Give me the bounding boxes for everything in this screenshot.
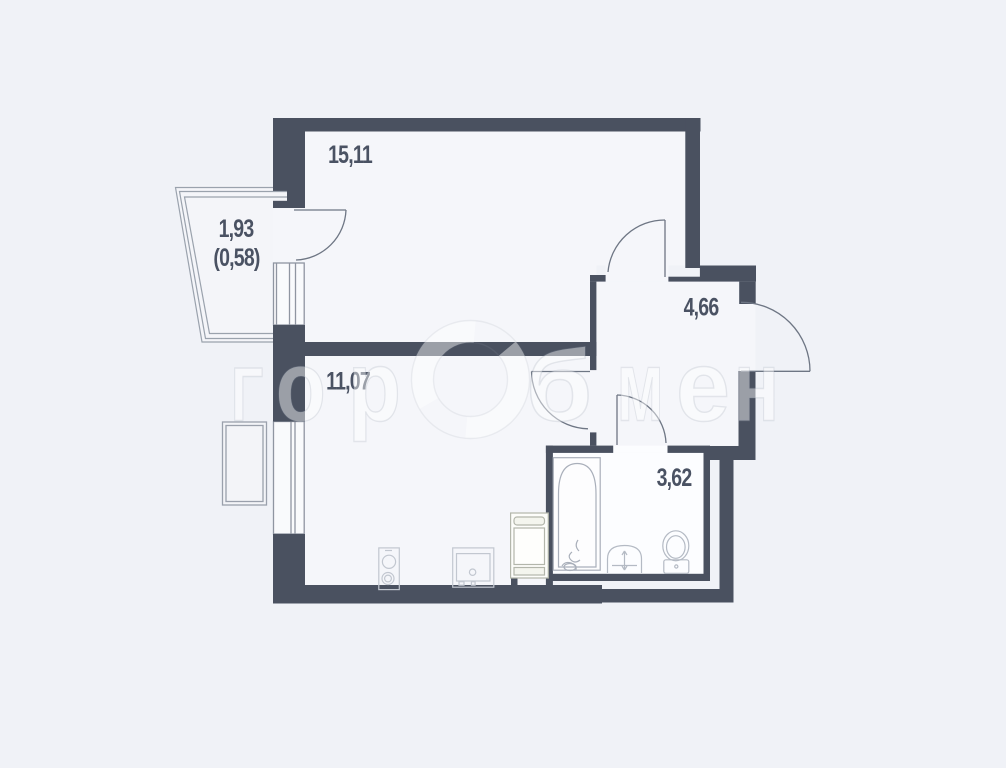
svg-text:е: е xyxy=(676,330,730,442)
svg-text:б: б xyxy=(526,331,593,442)
svg-text:4,66: 4,66 xyxy=(684,293,719,321)
svg-text:3,62: 3,62 xyxy=(657,464,692,492)
svg-text:1,93: 1,93 xyxy=(219,215,254,243)
svg-text:Г: Г xyxy=(231,353,263,438)
svg-text:м: м xyxy=(617,330,664,442)
svg-text:15,11: 15,11 xyxy=(328,141,372,169)
svg-text:о: о xyxy=(276,331,326,443)
svg-text:р: р xyxy=(348,330,401,442)
svg-text:(0,58): (0,58) xyxy=(213,244,260,272)
svg-text:н: н xyxy=(734,330,779,442)
